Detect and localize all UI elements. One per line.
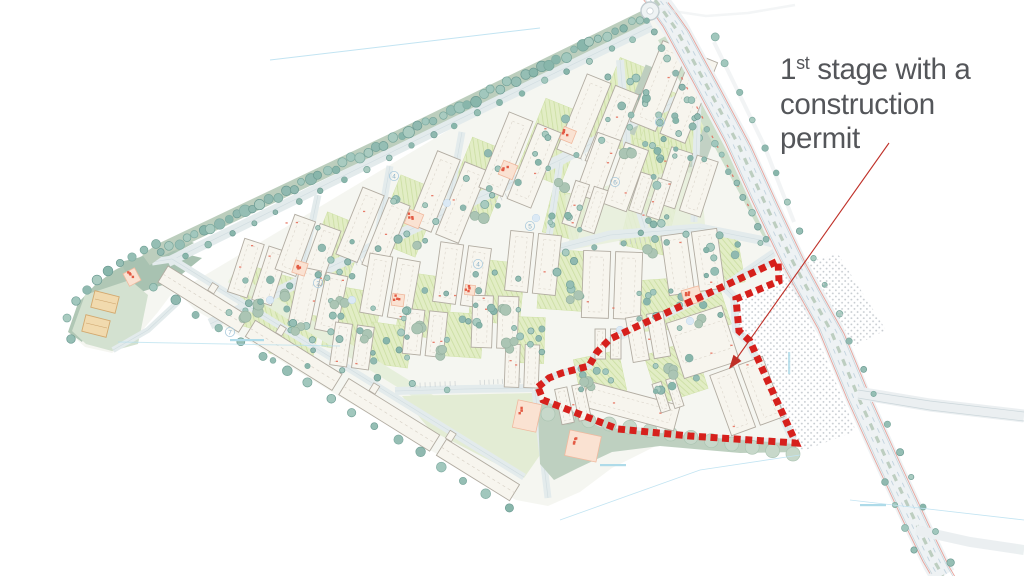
svg-text:2: 2 xyxy=(316,280,320,287)
svg-text:3: 3 xyxy=(658,119,662,126)
svg-text:4: 4 xyxy=(392,173,396,180)
svg-text:4: 4 xyxy=(476,261,480,268)
svg-text:6: 6 xyxy=(613,179,617,186)
svg-text:7: 7 xyxy=(228,329,232,336)
svg-text:5: 5 xyxy=(528,223,532,230)
